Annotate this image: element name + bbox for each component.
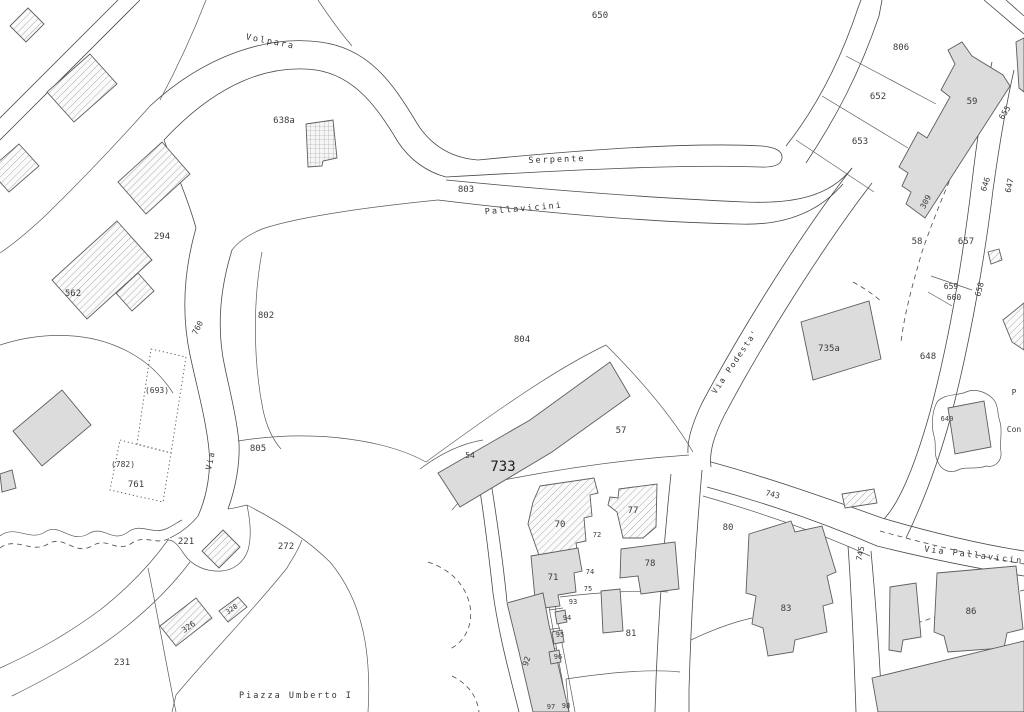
- parcel-label-693: (693): [145, 386, 169, 395]
- building-86: [934, 566, 1023, 652]
- building-small-left-edge: [0, 470, 16, 492]
- junction-connector: [170, 505, 247, 538]
- parcel-label-733-highlight: 733: [490, 459, 515, 475]
- building-west-of-86: [889, 583, 921, 652]
- parcel-label-95: 95: [556, 631, 564, 639]
- parcel-272-boundary: [247, 505, 369, 712]
- edge-label-con: Con: [1007, 425, 1022, 434]
- parcel-boundary-line: [846, 56, 936, 104]
- building-78-annex: [601, 589, 623, 633]
- parcel-label-658: 658: [973, 281, 985, 297]
- parcel-label-77: 77: [628, 506, 639, 516]
- road-pallavicini-north-edge: [446, 168, 852, 202]
- road-southwest-edge: [0, 540, 168, 668]
- corner-road-edge: [984, 0, 1024, 34]
- road-podesta-west-edge: [688, 168, 852, 453]
- building-735a: [801, 301, 881, 380]
- road-743-north-edge: [711, 462, 882, 518]
- street-label-via-podesta: Via Podesta': [710, 328, 760, 396]
- road-volpara-south-edge: [164, 69, 446, 177]
- road-loop-east-edge: [220, 250, 239, 509]
- street-label-volpara: Volpara: [245, 32, 296, 51]
- parcel-label-805: 805: [250, 444, 266, 454]
- edge-label-p: P: [1012, 388, 1017, 397]
- building-hatched: [0, 144, 39, 192]
- parcel-804-south-boundary: [238, 436, 426, 462]
- street-label-via-pallavicini: Via Pallavicini: [924, 545, 1024, 568]
- stream-dashed: [0, 538, 170, 549]
- parcel-label-57: 57: [616, 426, 627, 436]
- dotted-parcel-693: [137, 349, 186, 453]
- parcel-label-655: 655: [997, 104, 1012, 121]
- dotted-parcel-782: [110, 440, 171, 502]
- parcel-label-804: 804: [514, 335, 530, 345]
- parcel-label-75: 75: [584, 585, 592, 593]
- road-pallavicini-south-edge: [438, 184, 843, 224]
- parcel-label-660: 660: [947, 293, 962, 302]
- road-northeast-east-edge: [806, 0, 882, 163]
- parcel-label-652: 652: [870, 92, 886, 102]
- street-label-serpente: Serpente: [528, 154, 585, 166]
- parcel-label-74: 74: [586, 568, 594, 576]
- dashed-arc: [428, 562, 471, 649]
- road-via-pallavicini-north-edge: [882, 518, 1024, 551]
- parcel-label-221: 221: [178, 537, 194, 547]
- parcel-label-97: 97: [547, 703, 555, 711]
- building-hatched: [10, 8, 44, 42]
- parcel-label-803: 803: [458, 185, 474, 195]
- street-label-pallavicini: Pallavicini: [484, 201, 563, 218]
- road-corridor-east-edge: [689, 470, 702, 712]
- road-745-west-edge: [848, 546, 856, 712]
- building-221: [202, 530, 240, 568]
- parcel-81-south-boundary: [566, 671, 680, 712]
- parcel-boundary-line: [232, 200, 438, 250]
- map-viewport[interactable]: Volpara Serpente Pallavicini Via Podesta…: [0, 0, 1024, 712]
- parcel-label-646: 646: [979, 176, 992, 193]
- road-loop-west-edge: [185, 228, 210, 516]
- parcel-label-657: 657: [958, 237, 974, 247]
- parcel-label-640: 640: [941, 415, 954, 423]
- parcel-label-745: 745: [855, 545, 867, 561]
- parcel-label-735a: 735a: [818, 344, 840, 354]
- parcel-label-272: 272: [278, 542, 294, 552]
- parcel-label-81: 81: [626, 629, 637, 639]
- building-83: [746, 521, 836, 656]
- parcel-label-638a: 638a: [273, 116, 295, 126]
- parcel-label-54: 54: [465, 451, 475, 460]
- parcel-label-659: 659: [944, 282, 959, 291]
- parcel-label-802: 802: [258, 311, 274, 321]
- parcel-802-boundary: [255, 252, 281, 449]
- parcel-label-648: 648: [920, 352, 936, 362]
- parcel-label-71: 71: [548, 573, 559, 583]
- parcel-label-72: 72: [593, 531, 601, 539]
- parcel-label-58: 58: [912, 237, 923, 247]
- parcel-label-83: 83: [781, 604, 792, 614]
- building-hatched-743: [842, 489, 877, 508]
- parcel-label-80: 80: [723, 523, 734, 533]
- parcel-label-98: 98: [562, 702, 570, 710]
- parcel-label-294: 294: [154, 232, 170, 242]
- parcel-label-78: 78: [645, 559, 656, 569]
- parcel-80-south-boundary: [691, 618, 752, 640]
- parcel-label-93: 93: [569, 598, 577, 606]
- parcel-label-743: 743: [765, 488, 781, 500]
- stream-solid: [0, 520, 182, 537]
- road-serpente-outline: [446, 145, 782, 177]
- parcel-label-59: 59: [967, 97, 978, 107]
- building-640: [948, 401, 991, 454]
- parcel-label-782: (782): [111, 460, 135, 469]
- building-59: [899, 42, 1010, 218]
- cadastral-map-canvas[interactable]: Volpara Serpente Pallavicini Via Podesta…: [0, 0, 1024, 712]
- building-hatched: [118, 142, 190, 214]
- dashed-arc: [452, 676, 479, 712]
- building-near-782: [13, 390, 91, 466]
- road-corridor-west-edge: [655, 474, 671, 712]
- building-hatched-edge: [1003, 303, 1024, 350]
- building-hatched-657: [988, 249, 1002, 264]
- parcel-label-760: 760: [190, 319, 205, 336]
- building-733-strip: [438, 362, 630, 507]
- parcel-label-806: 806: [893, 43, 909, 53]
- road-west-corridor-edge: [479, 485, 519, 712]
- parcel-label-86: 86: [966, 607, 977, 617]
- parcel-label-761: 761: [128, 480, 144, 490]
- street-label-piazza-umberto: Piazza Umberto I: [239, 691, 353, 701]
- parcel-label-70: 70: [555, 520, 566, 530]
- boundary-dashed-segment: [853, 282, 882, 302]
- parcel-label-650: 650: [592, 11, 608, 21]
- parcel-label-647: 647: [1004, 177, 1016, 193]
- parcel-label-96: 96: [554, 653, 562, 661]
- road-west-corridor-edge: [491, 482, 507, 602]
- parcel-boundary-line: [160, 0, 206, 100]
- building-corner-sliver: [1016, 38, 1024, 92]
- parcel-label-562: 562: [65, 289, 81, 299]
- street-label-via: Via: [204, 450, 217, 470]
- building-hatched: [47, 54, 117, 122]
- building-326: [160, 598, 212, 646]
- buildings: [0, 8, 1024, 712]
- building-638a: [306, 120, 337, 167]
- parcel-label-231: 231: [114, 658, 130, 668]
- parcel-label-94: 94: [563, 614, 571, 622]
- parcel-boundary-line: [318, 0, 352, 46]
- road-northeast-west-edge: [786, 0, 861, 146]
- parcel-label-653: 653: [852, 137, 868, 147]
- parcel-boundary-line: [0, 335, 173, 393]
